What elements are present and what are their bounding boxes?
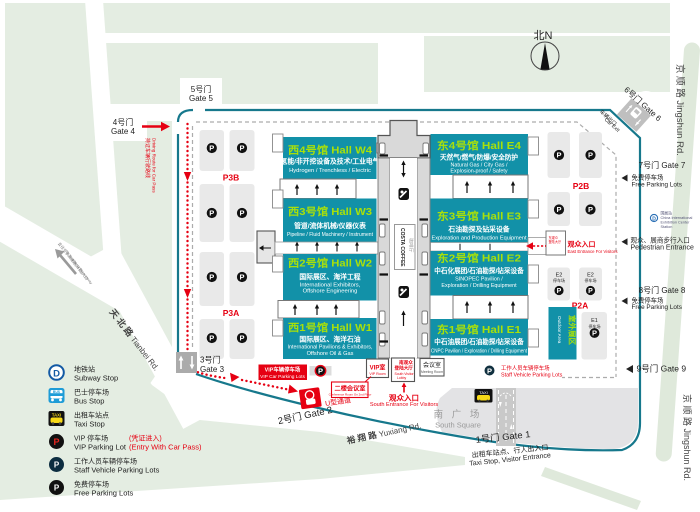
svg-text:Meeting Room: Meeting Room xyxy=(421,370,443,374)
svg-text:Gate 4: Gate 4 xyxy=(111,127,136,136)
svg-text:Offshore Engineering: Offshore Engineering xyxy=(303,289,358,295)
svg-text:P: P xyxy=(556,151,561,160)
svg-text:P: P xyxy=(53,437,59,447)
svg-text:(凭证进入): (凭证进入) xyxy=(129,434,162,443)
svg-text:Subway Stop: Subway Stop xyxy=(74,374,118,383)
svg-text:Station: Station xyxy=(661,225,673,229)
svg-text:(Entry With Car Pass): (Entry With Car Pass) xyxy=(129,443,202,452)
svg-text:P: P xyxy=(209,209,214,218)
svg-text:D: D xyxy=(53,368,60,379)
svg-text:VIP Car Parking Lots: VIP Car Parking Lots xyxy=(260,374,305,380)
svg-text:P: P xyxy=(556,205,561,214)
svg-text:P: P xyxy=(209,334,214,343)
svg-text:国际展区、海洋石油: 国际展区、海洋石油 xyxy=(299,335,360,344)
svg-text:P: P xyxy=(239,144,244,153)
svg-text:P: P xyxy=(209,273,214,282)
svg-text:中石油展团/石油勘探/钻采设备: 中石油展团/石油勘探/钻采设备 xyxy=(434,337,524,346)
svg-text:会议室: 会议室 xyxy=(423,361,441,369)
svg-text:免费停车场: 免费停车场 xyxy=(74,480,109,489)
svg-text:停车场: 停车场 xyxy=(553,277,565,283)
svg-text:西2号馆 Hall W2: 西2号馆 Hall W2 xyxy=(288,257,372,270)
svg-text:South Square: South Square xyxy=(435,421,481,430)
svg-text:北N: 北N xyxy=(534,29,553,42)
svg-text:International Pavilions & Exhi: International Pavilions & Exhibitors, xyxy=(288,345,373,351)
svg-text:南 广 场: 南 广 场 xyxy=(434,409,483,421)
svg-text:P: P xyxy=(487,366,492,375)
svg-text:观众入口: 观众入口 xyxy=(389,393,419,403)
svg-text:Explosion-proof / Safety: Explosion-proof / Safety xyxy=(450,169,508,175)
svg-text:Exploration and Production Equ: Exploration and Production Equipment xyxy=(432,236,528,242)
svg-text:国际展区、海洋工程: 国际展区、海洋工程 xyxy=(299,272,360,281)
svg-text:Pipeline / Fluid Machinery / I: Pipeline / Fluid Machinery / Instrument xyxy=(287,232,373,238)
svg-text:Lobby: Lobby xyxy=(397,376,407,380)
svg-text:国展站: 国展站 xyxy=(661,211,673,216)
svg-text:SINOPEC Pavilion /: SINOPEC Pavilion / xyxy=(455,277,503,283)
svg-text:P: P xyxy=(588,151,593,160)
svg-text:CNPC Pavilion / Exploration /: CNPC Pavilion / Exploration / Drilling E… xyxy=(431,349,527,355)
svg-text:天然气/燃气/防爆/安全防护: 天然气/燃气/防爆/安全防护 xyxy=(440,153,518,162)
svg-text:VIP Room: VIP Room xyxy=(369,372,385,376)
svg-text:9号门 Gate 9: 9号门 Gate 9 xyxy=(637,364,687,374)
svg-text:西3号馆 Hall W3: 西3号馆 Hall W3 xyxy=(288,205,372,218)
svg-text:管道/流体机械/仪器仪表: 管道/流体机械/仪器仪表 xyxy=(294,221,366,230)
svg-text:VIP室: VIP室 xyxy=(370,364,386,372)
svg-text:Gate 5: Gate 5 xyxy=(189,94,214,103)
svg-text:P3B: P3B xyxy=(223,173,240,183)
svg-text:Conference Room On 2nd Floor: Conference Room On 2nd Floor xyxy=(329,393,372,397)
svg-text:石油勘探及钻采设备: 石油勘探及钻采设备 xyxy=(447,225,509,234)
svg-text:巴士停车场: 巴士停车场 xyxy=(74,388,109,397)
svg-text:Taxi Stop: Taxi Stop xyxy=(74,420,105,429)
svg-text:二楼会议室: 二楼会议室 xyxy=(335,385,366,393)
svg-text:COSTA COFFEE: COSTA COFFEE xyxy=(399,228,405,267)
svg-text:Staff Vehicle Parking Lots: Staff Vehicle Parking Lots xyxy=(501,373,563,379)
svg-text:P: P xyxy=(588,205,593,214)
svg-text:持证车辆行驶路线: 持证车辆行驶路线 xyxy=(144,138,151,178)
svg-text:P: P xyxy=(54,483,60,492)
svg-text:VIP Parking Lot: VIP Parking Lot xyxy=(74,443,127,452)
svg-text:Pedestrian Entrance: Pedestrian Entrance xyxy=(631,245,695,252)
svg-text:工作人员车辆停车场: 工作人员车辆停车场 xyxy=(501,364,550,372)
svg-text:东2号馆 Hall E2: 东2号馆 Hall E2 xyxy=(437,252,521,265)
svg-text:氢能/非开挖设备及技术/工业电气: 氢能/非开挖设备及技术/工业电气 xyxy=(281,157,380,166)
svg-text:Outdoor Area: Outdoor Area xyxy=(557,316,562,344)
svg-text:出租车站点: 出租车站点 xyxy=(74,411,109,420)
svg-text:地铁站: 地铁站 xyxy=(74,365,95,374)
svg-text:P: P xyxy=(239,334,244,343)
svg-text:P2B: P2B xyxy=(573,181,590,191)
svg-text:西1号馆 Hall W1: 西1号馆 Hall W1 xyxy=(288,321,372,334)
svg-text:Staff Vehicle Parking Lots: Staff Vehicle Parking Lots xyxy=(74,466,160,475)
svg-text:观众入口: 观众入口 xyxy=(568,240,596,249)
svg-text:P: P xyxy=(318,367,323,376)
svg-text:East Entrance For Visitors: East Entrance For Visitors xyxy=(568,249,619,255)
svg-text:VIP 停车场: VIP 停车场 xyxy=(74,434,108,443)
svg-text:Exploration / Drilling Equipme: Exploration / Drilling Equipment xyxy=(441,283,517,289)
svg-text:South Entrance For Visitors: South Entrance For Visitors xyxy=(370,402,438,408)
svg-text:TAXI: TAXI xyxy=(479,390,488,395)
svg-text:3号门: 3号门 xyxy=(200,355,220,365)
svg-text:D: D xyxy=(652,216,656,222)
svg-text:东3号馆 Hall E3: 东3号馆 Hall E3 xyxy=(437,210,521,223)
svg-text:东4号馆 Hall E4: 东4号馆 Hall E4 xyxy=(437,139,521,152)
svg-text:登陆大厅: 登陆大厅 xyxy=(549,239,563,244)
svg-text:Gate 3: Gate 3 xyxy=(200,365,225,374)
svg-text:停车场: 停车场 xyxy=(585,277,597,283)
svg-text:免费停车场: 免费停车场 xyxy=(632,173,664,182)
svg-text:中石化展团/石油勘探/钻采设备: 中石化展团/石油勘探/钻采设备 xyxy=(434,266,524,275)
svg-text:P: P xyxy=(54,460,60,469)
svg-text:P: P xyxy=(592,329,597,338)
svg-text:P: P xyxy=(209,144,214,153)
svg-text:室外展区: 室外展区 xyxy=(568,315,578,345)
svg-text:7号门 Gate 7: 7号门 Gate 7 xyxy=(639,160,686,170)
svg-text:Free Parking Lots: Free Parking Lots xyxy=(74,489,133,498)
svg-text:4号门: 4号门 xyxy=(113,117,133,127)
svg-text:东1号馆 Hall E1: 东1号馆 Hall E1 xyxy=(437,323,521,336)
svg-text:京 顺 路 Jingshun Rd.: 京 顺 路 Jingshun Rd. xyxy=(682,394,693,481)
svg-text:TAXI: TAXI xyxy=(52,413,61,418)
svg-text:VIP车辆停车场: VIP车辆停车场 xyxy=(265,366,301,374)
svg-text:8号门 Gate 8: 8号门 Gate 8 xyxy=(639,285,686,295)
svg-text:China International: China International xyxy=(661,216,693,220)
svg-text:登陆大厅: 登陆大厅 xyxy=(394,365,414,372)
svg-text:P: P xyxy=(239,209,244,218)
svg-text:西4号馆 Hall W4: 西4号馆 Hall W4 xyxy=(288,144,372,157)
svg-text:Bus Stop: Bus Stop xyxy=(74,397,104,406)
svg-text:Free Parking Lots: Free Parking Lots xyxy=(632,182,682,189)
svg-text:P: P xyxy=(588,288,593,295)
svg-text:Hydrogen / Trenchless / Electr: Hydrogen / Trenchless / Electric xyxy=(289,168,371,174)
svg-text:咖啡厅: 咖啡厅 xyxy=(408,238,415,253)
svg-text:Driving Route for Car Pass: Driving Route for Car Pass xyxy=(152,138,157,193)
svg-text:京 顺 路 Jingshun Rd.: 京 顺 路 Jingshun Rd. xyxy=(674,64,686,156)
svg-text:5号门: 5号门 xyxy=(191,84,211,94)
svg-text:Offshore Oil & Gas: Offshore Oil & Gas xyxy=(307,351,354,357)
svg-text:Exhibition Center: Exhibition Center xyxy=(661,221,691,225)
svg-text:工作人员车辆停车场: 工作人员车辆停车场 xyxy=(74,457,137,466)
svg-text:P: P xyxy=(557,288,562,295)
svg-text:P: P xyxy=(239,273,244,282)
svg-text:Free Parking Lots: Free Parking Lots xyxy=(632,304,682,311)
svg-text:观众、展商步行入口: 观众、展商步行入口 xyxy=(631,236,690,245)
svg-text:P3A: P3A xyxy=(223,308,240,318)
svg-text:BUS: BUS xyxy=(53,390,61,394)
